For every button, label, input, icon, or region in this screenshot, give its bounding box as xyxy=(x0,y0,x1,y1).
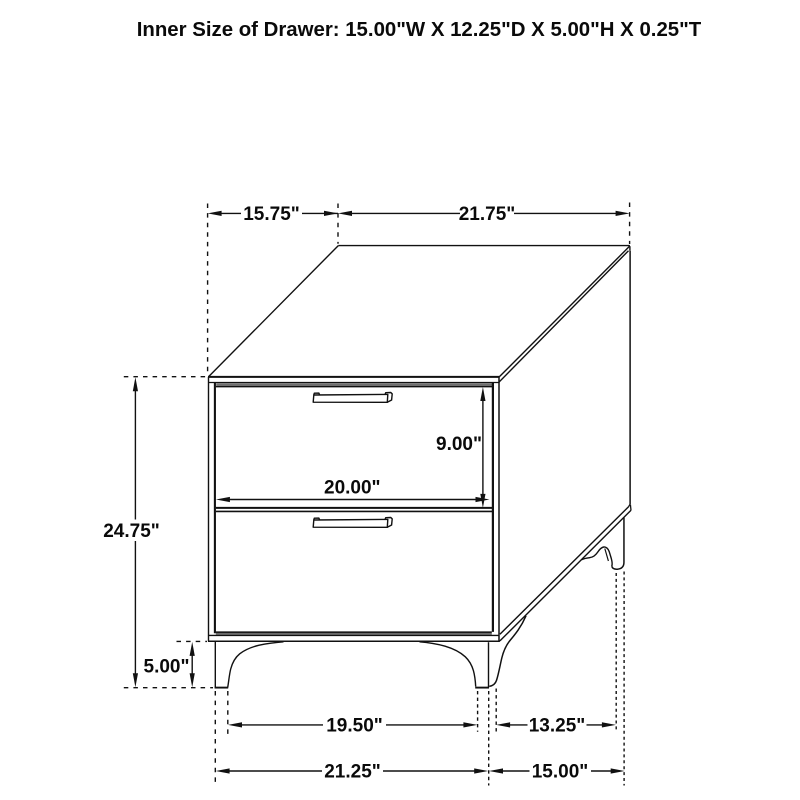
svg-text:15.00": 15.00" xyxy=(532,761,589,782)
svg-text:15.75": 15.75" xyxy=(243,204,300,225)
svg-text:9.00": 9.00" xyxy=(436,434,482,455)
svg-text:20.00": 20.00" xyxy=(324,477,381,498)
svg-text:13.25": 13.25" xyxy=(529,715,586,736)
svg-text:19.50": 19.50" xyxy=(326,715,383,736)
svg-text:24.75": 24.75" xyxy=(103,521,160,542)
svg-text:21.25": 21.25" xyxy=(324,761,381,782)
svg-text:21.75": 21.75" xyxy=(459,204,516,225)
svg-text:5.00": 5.00" xyxy=(144,656,190,677)
svg-text:Inner Size of Drawer: 15.00"W: Inner Size of Drawer: 15.00"W X 12.25"D … xyxy=(137,19,702,41)
